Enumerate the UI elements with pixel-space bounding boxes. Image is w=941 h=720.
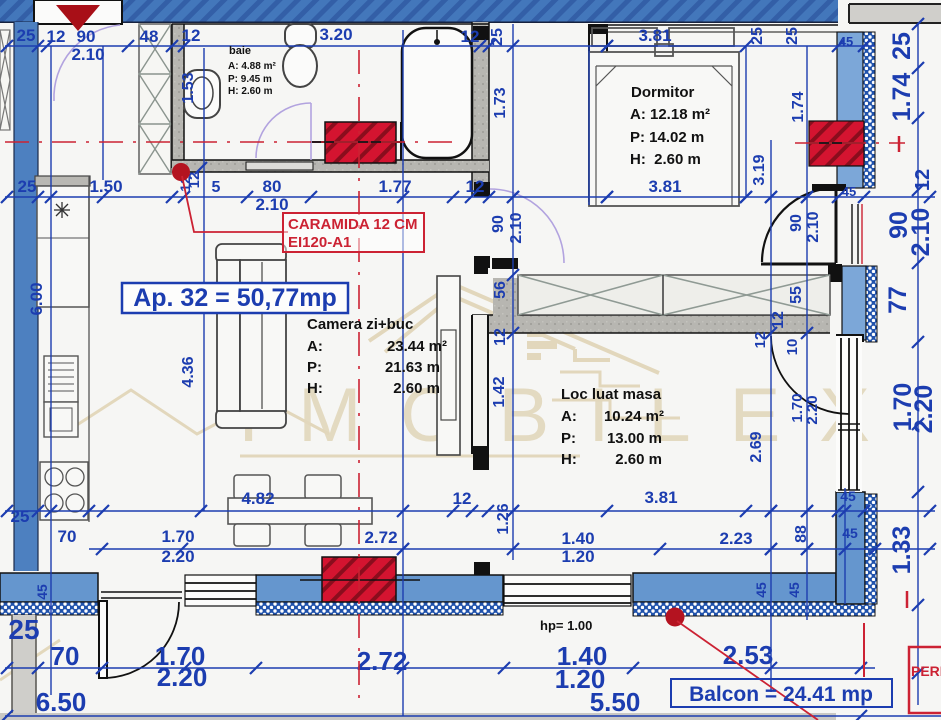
svg-text:A:: A: [307,338,323,355]
svg-text:48: 48 [140,27,159,46]
svg-text:2.10: 2.10 [508,212,525,243]
svg-text:12: 12 [752,332,769,349]
svg-text:21.63 m: 21.63 m [385,359,440,376]
svg-text:1.73: 1.73 [492,87,509,118]
svg-text:2.20: 2.20 [910,385,938,434]
svg-text:1.26: 1.26 [495,503,512,534]
svg-text:2.10: 2.10 [805,211,822,242]
svg-text:45: 45 [840,488,856,504]
svg-text:P:: P: [561,430,576,447]
svg-text:70: 70 [51,641,80,671]
svg-text:Camera zi+buc: Camera zi+buc [307,316,413,333]
svg-text:2.72: 2.72 [357,646,408,676]
svg-text:P:: P: [307,359,322,376]
svg-text:45: 45 [34,584,50,600]
svg-text:5: 5 [212,179,221,196]
svg-text:baie: baie [229,45,251,57]
svg-text:25: 25 [749,27,766,45]
svg-text:80: 80 [263,177,282,196]
svg-text:6.00: 6.00 [27,282,46,315]
svg-text:25: 25 [489,28,506,46]
svg-text:PERIM: PERIM [911,663,941,679]
svg-text:25: 25 [784,27,801,45]
svg-text:Balcon = 24.41 mp: Balcon = 24.41 mp [689,683,873,706]
svg-text:Ap. 32 = 50,77mp: Ap. 32 = 50,77mp [133,284,337,312]
svg-text:H: 2.60 m: H: 2.60 m [228,86,273,97]
svg-text:90: 90 [788,214,805,232]
svg-text:3.81: 3.81 [638,26,671,45]
svg-text:1.33: 1.33 [888,526,916,575]
svg-text:Loc luat masa: Loc luat masa [561,386,662,403]
svg-text:P: 14.02 m: P: 14.02 m [630,129,704,146]
svg-text:45: 45 [839,34,853,49]
svg-text:2.23: 2.23 [719,529,752,548]
svg-text:6.50: 6.50 [36,687,87,717]
svg-text:A:: A: [561,408,577,425]
svg-text:H:: H: [561,451,577,468]
svg-text:1.20: 1.20 [561,547,594,566]
svg-text:H: 2.60 m: H: 2.60 m [630,151,701,168]
svg-text:2.60 m: 2.60 m [615,451,662,468]
svg-text:2.20: 2.20 [804,395,821,424]
svg-text:45: 45 [842,184,856,199]
svg-text:25: 25 [17,26,36,45]
svg-text:10.24 m²: 10.24 m² [604,408,664,425]
svg-text:2.10: 2.10 [71,45,104,64]
svg-text:2.20: 2.20 [157,662,208,692]
svg-text:1.74: 1.74 [888,73,916,122]
svg-text:10: 10 [784,339,801,356]
svg-text:12: 12 [182,26,201,45]
svg-text:2.53: 2.53 [723,640,774,670]
svg-text:45: 45 [786,582,802,598]
svg-text:A: 4.88 m²: A: 4.88 m² [228,61,276,72]
svg-text:25: 25 [11,507,30,526]
svg-text:1.53: 1.53 [180,72,197,103]
svg-text:4.82: 4.82 [241,489,274,508]
svg-text:3.20: 3.20 [319,25,352,44]
svg-text:12: 12 [466,177,485,196]
svg-text:56: 56 [492,281,509,299]
svg-text:2.72: 2.72 [364,528,397,547]
svg-text:3.19: 3.19 [751,154,768,185]
svg-text:CARAMIDA 12 CM: CARAMIDA 12 CM [288,216,417,233]
svg-text:12: 12 [47,27,66,46]
svg-text:88: 88 [793,525,810,543]
svg-text:1.50: 1.50 [89,177,122,196]
svg-text:2.20: 2.20 [161,547,194,566]
svg-text:90: 90 [77,27,96,46]
svg-text:12: 12 [492,328,509,346]
svg-text:3.81: 3.81 [648,177,681,196]
svg-text:25: 25 [888,32,916,60]
svg-text:23.44 m²: 23.44 m² [387,338,447,355]
svg-text:1.42: 1.42 [491,376,508,407]
svg-text:90: 90 [490,215,507,233]
svg-text:A: 12.18 m²: A: 12.18 m² [630,106,710,123]
svg-text:1.40: 1.40 [561,529,594,548]
svg-text:12: 12 [461,27,480,46]
svg-text:1.77: 1.77 [378,177,411,196]
svg-text:45: 45 [753,582,769,598]
svg-text:12: 12 [912,169,934,191]
svg-text:4.36: 4.36 [180,356,197,387]
svg-text:2.10: 2.10 [907,208,935,257]
svg-text:55: 55 [788,286,805,304]
svg-text:77: 77 [884,286,912,314]
svg-text:13.00 m: 13.00 m [607,430,662,447]
svg-text:2.69: 2.69 [748,431,765,462]
svg-text:hp= 1.00: hp= 1.00 [540,618,592,633]
svg-text:1.70: 1.70 [161,527,194,546]
svg-text:12: 12 [453,489,472,508]
svg-text:12: 12 [770,311,787,329]
svg-text:2.10: 2.10 [255,195,288,214]
svg-text:3.81: 3.81 [644,488,677,507]
svg-text:H:: H: [307,380,323,397]
svg-text:1.74: 1.74 [790,91,807,122]
svg-text:EI120-A1: EI120-A1 [288,234,351,251]
svg-text:P: 9.45 m: P: 9.45 m [228,74,272,85]
svg-text:2.60 m: 2.60 m [393,380,440,397]
svg-text:Dormitor: Dormitor [631,84,694,101]
svg-text:5.50: 5.50 [590,687,641,717]
svg-text:25: 25 [8,614,39,645]
svg-text:45: 45 [842,525,858,541]
svg-text:70: 70 [58,527,77,546]
svg-text:25: 25 [18,177,37,196]
